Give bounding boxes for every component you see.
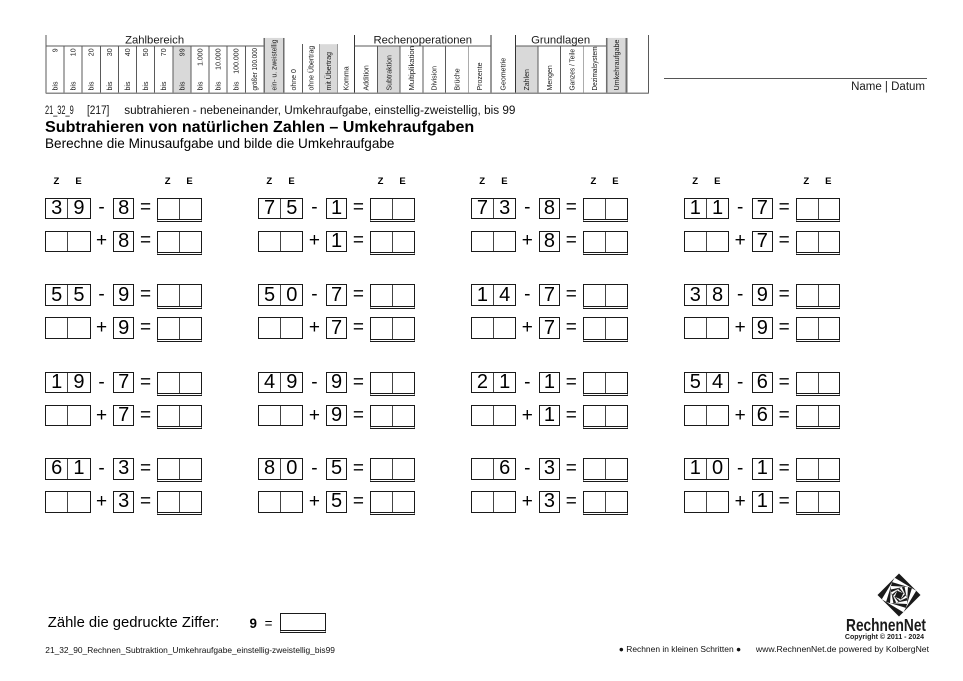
svg-text:100.000: 100.000: [234, 48, 241, 73]
svg-text:bis: bis: [71, 81, 78, 90]
svg-text:40: 40: [125, 48, 132, 56]
svg-text:50: 50: [143, 48, 150, 56]
svg-text:Umkehraufgabe: Umkehraufgabe: [614, 39, 621, 90]
svg-text:bis: bis: [234, 81, 241, 90]
svg-text:Subtraktion: Subtraktion: [386, 55, 393, 91]
svg-text:Komma: Komma: [344, 66, 351, 90]
svg-text:10: 10: [71, 48, 78, 56]
svg-text:bis: bis: [143, 81, 150, 90]
svg-text:20: 20: [89, 48, 96, 56]
svg-text:Multiplikation: Multiplikation: [409, 46, 416, 91]
svg-text:ohne 0: ohne 0: [291, 69, 298, 91]
svg-text:Grundlagen: Grundlagen: [531, 34, 590, 46]
svg-text:Rechenoperationen: Rechenoperationen: [373, 34, 472, 46]
svg-text:Division: Division: [432, 66, 439, 91]
svg-text:Zahlbereich: Zahlbereich: [125, 34, 184, 46]
svg-text:70: 70: [161, 48, 168, 56]
svg-text:bis: bis: [125, 81, 132, 90]
svg-text:bis: bis: [179, 81, 186, 90]
svg-text:bis: bis: [89, 81, 96, 90]
svg-text:Brüche: Brüche: [454, 68, 461, 90]
svg-text:größer 100.000: größer 100.000: [252, 48, 259, 91]
svg-text:9: 9: [53, 48, 60, 52]
svg-text:bis: bis: [216, 81, 223, 90]
svg-text:ohne Übertrag: ohne Übertrag: [307, 46, 315, 91]
svg-text:bis: bis: [53, 81, 60, 90]
svg-text:30: 30: [107, 48, 114, 56]
svg-text:Prozente: Prozente: [477, 62, 484, 90]
svg-text:ein- u. zweistellig: ein- u. zweistellig: [272, 39, 279, 90]
svg-text:Zahlen: Zahlen: [524, 69, 531, 91]
svg-text:Geometrie: Geometrie: [501, 58, 508, 91]
svg-text:bis: bis: [161, 81, 168, 90]
svg-text:10.000: 10.000: [216, 48, 223, 70]
svg-text:Ganzes / Teile: Ganzes / Teile: [569, 49, 576, 91]
svg-text:bis: bis: [107, 81, 114, 90]
svg-text:Mengen: Mengen: [547, 65, 554, 90]
svg-text:Addition: Addition: [364, 65, 371, 90]
svg-text:bis: bis: [198, 81, 205, 90]
svg-text:mit Übertrag: mit Übertrag: [325, 52, 333, 91]
svg-text:Dezimalsystem: Dezimalsystem: [592, 46, 599, 90]
svg-text:99: 99: [179, 48, 186, 56]
svg-text:1.000: 1.000: [198, 48, 205, 66]
